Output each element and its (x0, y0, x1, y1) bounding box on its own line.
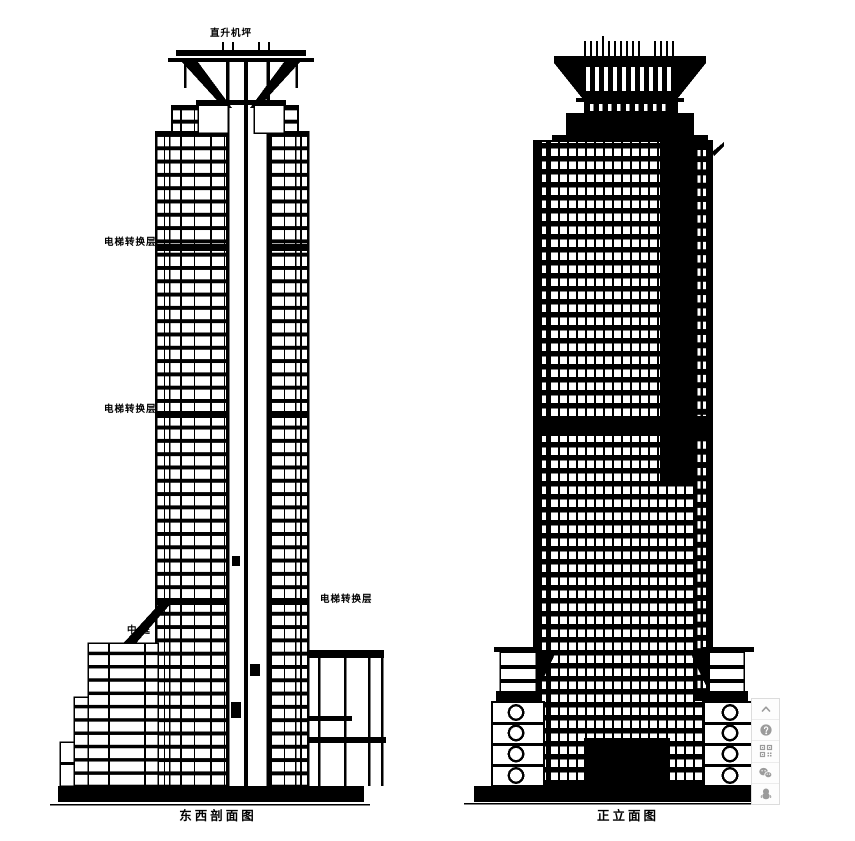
wechat-icon (758, 766, 773, 780)
help-button[interactable] (752, 720, 779, 741)
caption-section: 东西剖面图 (179, 810, 257, 823)
label-elevator-transfer-middle: 电梯转换层 (104, 405, 157, 415)
label-elevator-transfer-upper: 电梯转换层 (104, 238, 157, 248)
qq-button[interactable] (752, 784, 779, 804)
back-to-top-button[interactable] (752, 699, 779, 720)
section-drawing (50, 42, 386, 806)
label-atrium: 中庭 (127, 626, 154, 636)
qr-code-icon (759, 744, 773, 758)
qr-code-button[interactable] (752, 741, 779, 762)
floating-side-toolbar (751, 698, 780, 805)
label-elevator-transfer-lower: 电梯转换层 (320, 595, 373, 605)
page: 直升机坪 电梯转换层 电梯转换层 电梯转换层 中庭 东西剖面图 正立面图 (0, 0, 855, 841)
question-circle-icon (759, 723, 773, 737)
chevron-up-icon (759, 702, 773, 716)
qq-penguin-icon (759, 787, 773, 801)
caption-elevation: 正立面图 (597, 810, 659, 823)
elevation-drawing (464, 36, 778, 805)
label-helipad: 直升机坪 (210, 29, 252, 39)
architectural-drawings (0, 0, 855, 841)
wechat-button[interactable] (752, 763, 779, 784)
